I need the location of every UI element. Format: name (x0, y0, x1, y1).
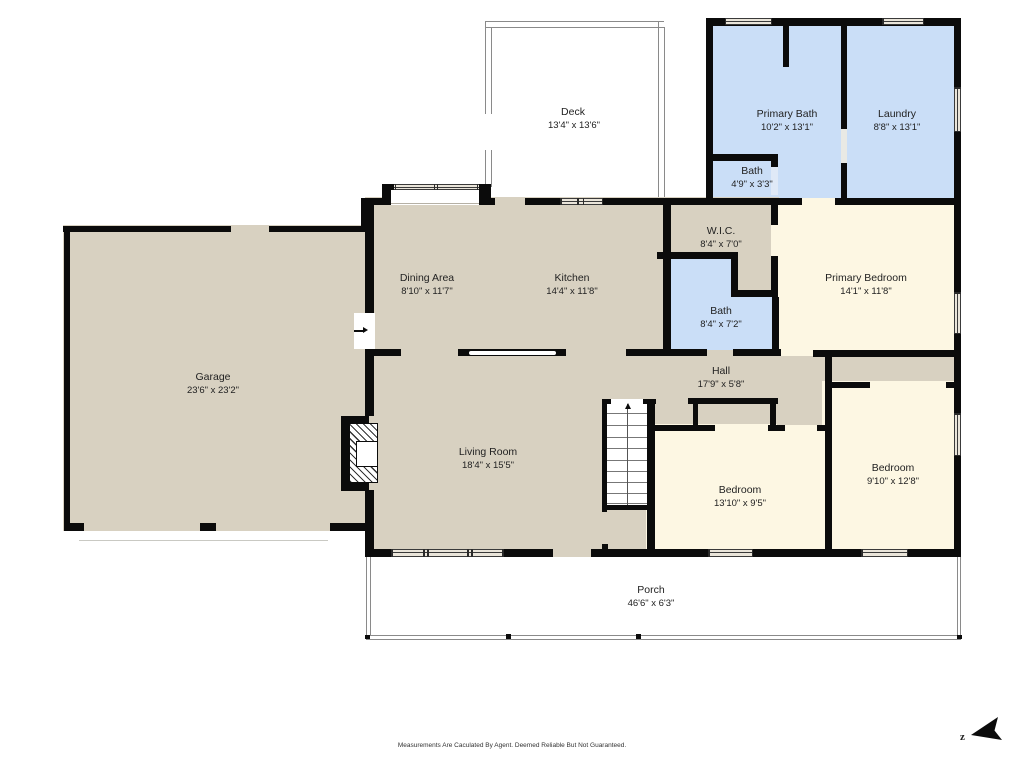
svg-text:z: z (960, 731, 965, 743)
